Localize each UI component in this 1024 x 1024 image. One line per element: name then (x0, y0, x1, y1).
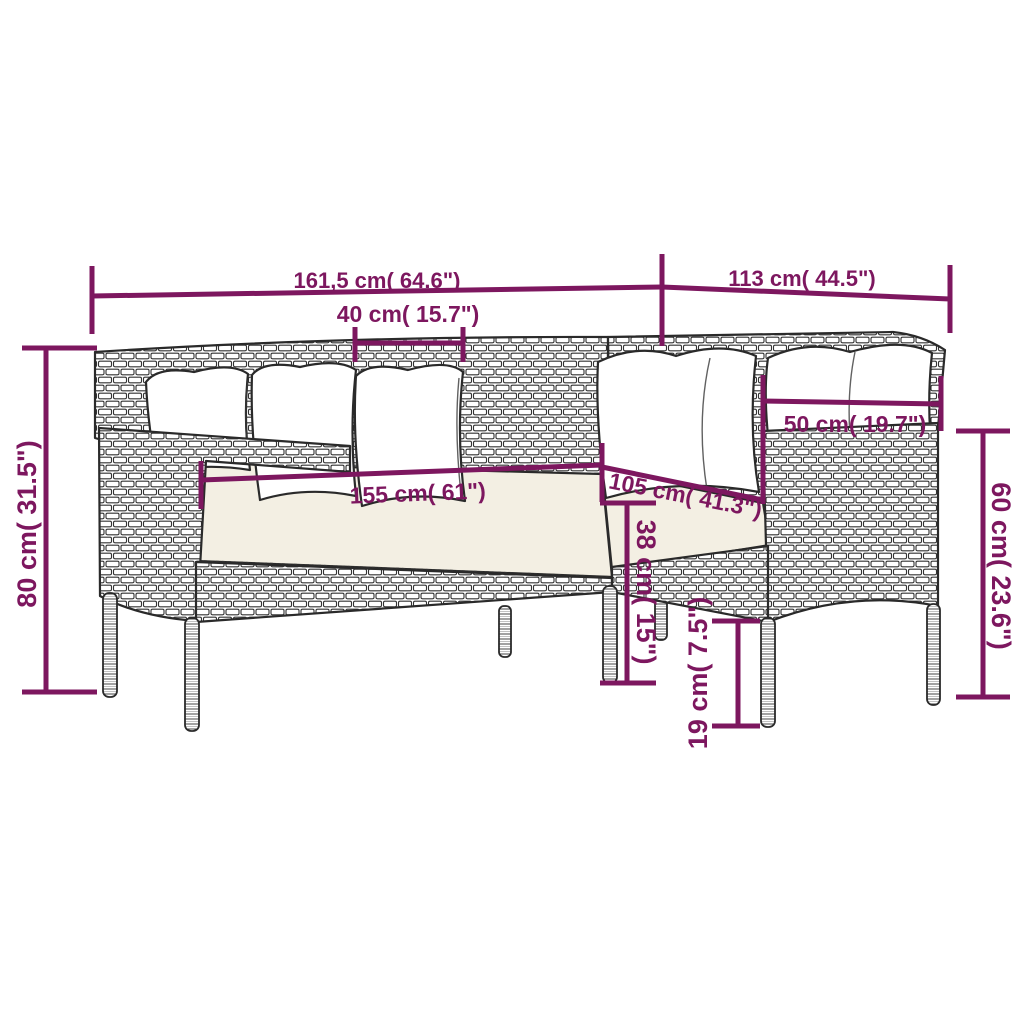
leg-right-front (761, 618, 775, 727)
leg-left-front (185, 618, 199, 731)
leg-corner-front (603, 586, 617, 683)
label-seat-length: 155 cm( 61") (349, 477, 486, 508)
leg-back-middle (499, 606, 511, 657)
sofa-illustration (95, 332, 945, 731)
dimension-ground-clearance: 19 cm( 7.5") (683, 597, 760, 749)
label-seat-height: 38 cm( 15") (631, 520, 661, 665)
label-back-pillow-width: 40 cm( 15.7") (337, 301, 480, 327)
dimension-total-height: 80 cm( 31.5") (12, 348, 97, 692)
dimension-total-depth: 113 cm( 44.5") (662, 265, 950, 333)
leg-right-back (927, 604, 940, 705)
label-back-height: 60 cm( 23.6") (986, 482, 1016, 649)
dimension-diagram: 161,5 cm( 64.6") 113 cm( 44.5") 40 cm( 1… (0, 0, 1024, 1024)
label-side-pillow-width: 50 cm( 19.7") (784, 411, 927, 437)
label-total-height: 80 cm( 31.5") (12, 440, 42, 607)
label-total-depth: 113 cm( 44.5") (728, 266, 875, 291)
dimension-back-height: 60 cm( 23.6") (956, 431, 1016, 697)
diagram-canvas: 161,5 cm( 64.6") 113 cm( 44.5") 40 cm( 1… (0, 0, 1024, 1024)
dimension-total-width: 161,5 cm( 64.6") (92, 254, 662, 346)
armrest-right (763, 423, 938, 622)
label-ground-clearance: 19 cm( 7.5") (683, 597, 713, 749)
leg-left-back (103, 593, 117, 697)
label-total-width: 161,5 cm( 64.6") (294, 268, 461, 293)
